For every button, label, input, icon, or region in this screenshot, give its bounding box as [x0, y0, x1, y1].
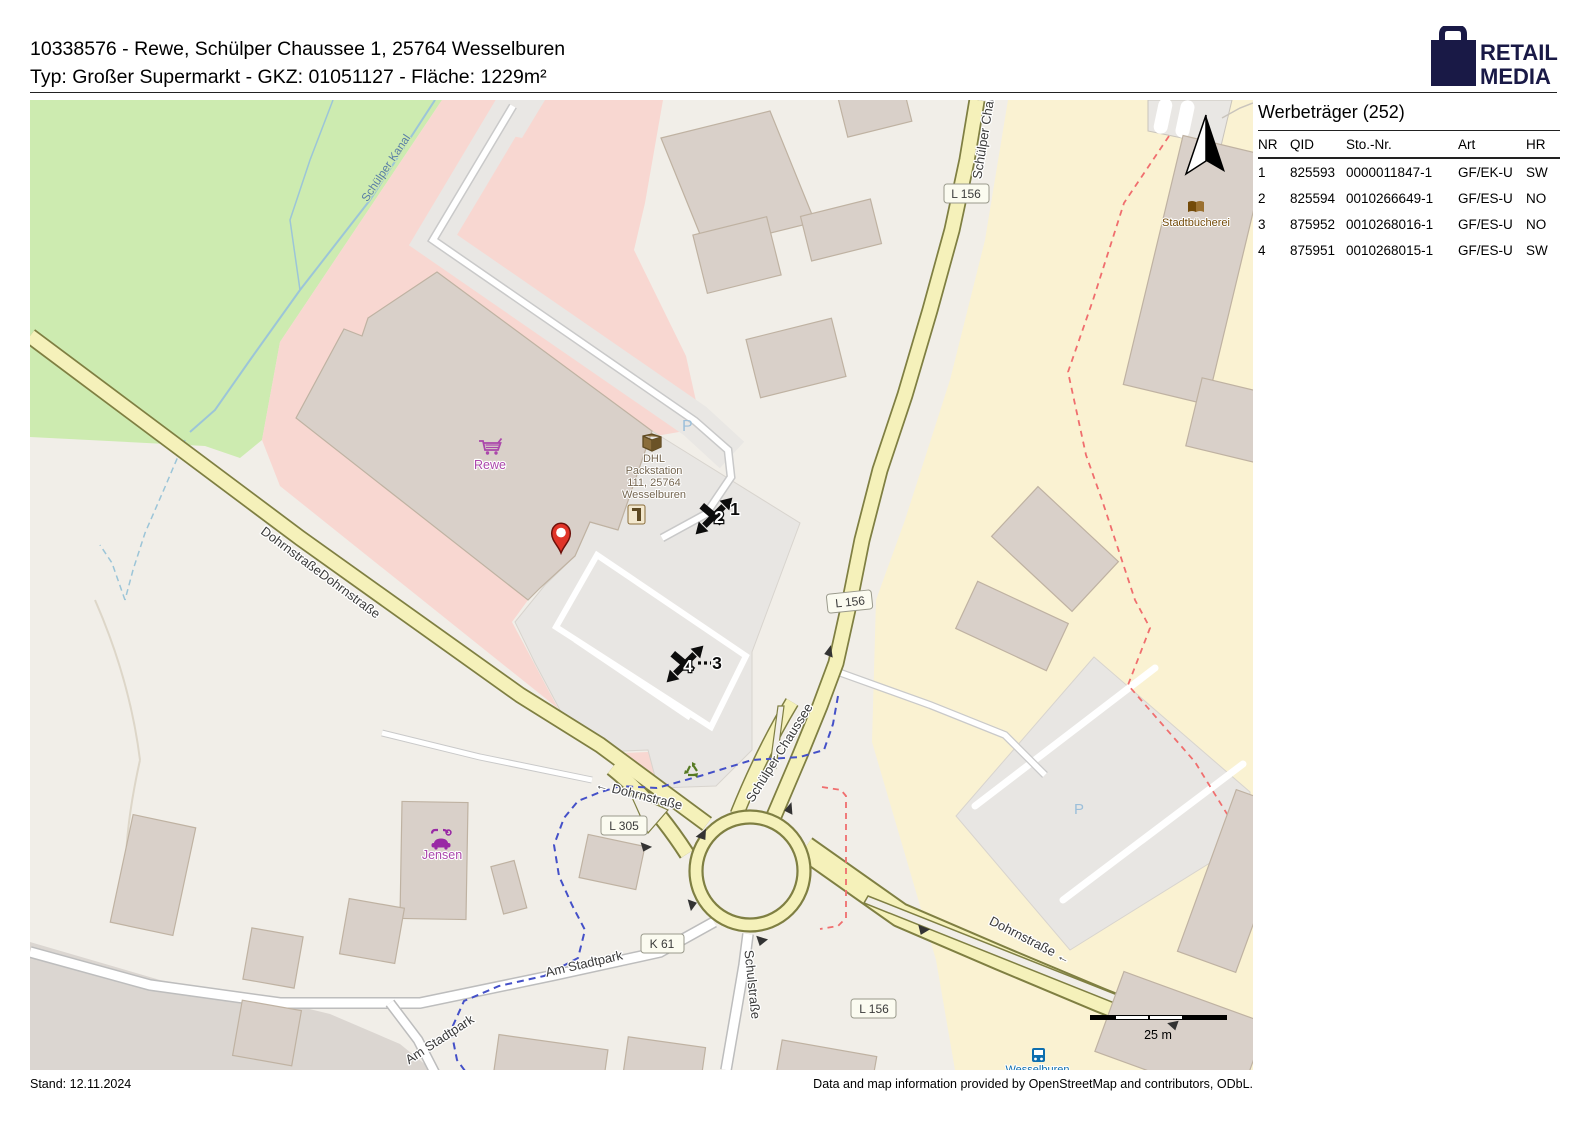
svg-text:25 m: 25 m: [1144, 1028, 1172, 1042]
svg-text:MEDIA: MEDIA: [1480, 64, 1551, 88]
svg-text:K 61: K 61: [650, 937, 675, 951]
svg-text:111, 25764: 111, 25764: [627, 477, 680, 489]
svg-text:2: 2: [714, 507, 724, 527]
svg-text:Wesselburen,: Wesselburen,: [1005, 1064, 1072, 1070]
svg-text:4: 4: [683, 656, 693, 676]
svg-text:1: 1: [730, 499, 740, 519]
svg-text:L 156: L 156: [951, 187, 981, 201]
svg-text:L 156: L 156: [859, 1002, 889, 1016]
svg-text:3: 3: [712, 653, 722, 673]
svg-text:RETAIL: RETAIL: [1480, 40, 1558, 65]
svg-text:Jensen: Jensen: [422, 848, 462, 862]
svg-text:Rewe: Rewe: [474, 458, 506, 472]
svg-text:P: P: [1074, 801, 1084, 818]
svg-text:Wesselburen: Wesselburen: [622, 489, 686, 501]
svg-text:Stadtbücherei: Stadtbücherei: [1162, 217, 1230, 229]
svg-text:Packstation: Packstation: [626, 465, 683, 477]
svg-text:DHL: DHL: [643, 453, 665, 465]
svg-text:P: P: [682, 418, 693, 435]
svg-text:L 305: L 305: [609, 819, 639, 833]
